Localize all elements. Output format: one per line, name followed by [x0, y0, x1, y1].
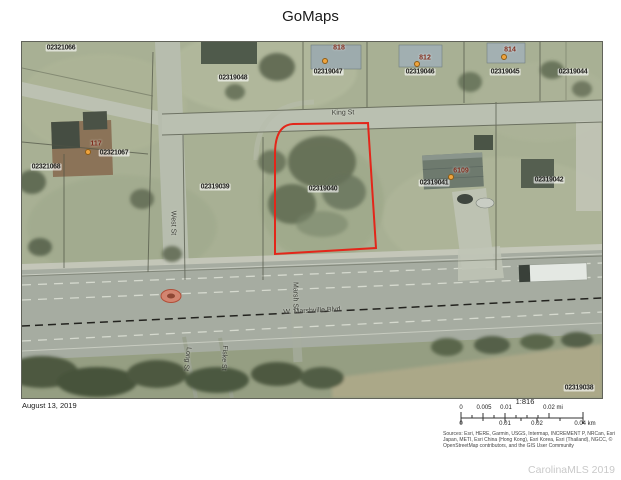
house-number: 6109 — [453, 168, 469, 175]
semi-truck — [519, 263, 588, 282]
parcel-label: 02319046 — [405, 69, 436, 76]
scalebar-km-tick: 0.04 km — [574, 421, 595, 427]
parcel-label: 02319038 — [564, 385, 595, 392]
parcel-label: 02319042 — [534, 177, 565, 184]
scalebar-mi-tick: 0 — [459, 405, 462, 411]
scalebar-km-tick: 0 — [459, 421, 462, 427]
scale-bar — [455, 412, 590, 424]
address-point-icon — [85, 149, 91, 155]
street-label-fiske: Fiske St — [220, 345, 228, 371]
parcel-label: 02319048 — [218, 75, 249, 82]
parcel-label: 02319041 — [419, 180, 450, 187]
house-number: 812 — [419, 55, 431, 62]
house-number: 117 — [90, 141, 101, 148]
scalebar-mi-tick: 0.01 — [500, 405, 512, 411]
house-number: 818 — [333, 45, 345, 52]
street-label-west: West St — [170, 211, 177, 235]
building-roof — [201, 42, 257, 64]
map-attribution: Sources: Esri, HERE, Garmin, USGS, Inter… — [443, 432, 617, 449]
street-label-marsh: Marsh St — [292, 282, 299, 310]
address-point-icon — [501, 54, 507, 60]
street-label-king: King St — [332, 109, 355, 116]
road-point-marker — [161, 290, 181, 303]
parcel-label: 02321066 — [46, 45, 77, 52]
shed-roof — [474, 135, 493, 150]
parcel-label: 02319039 — [200, 184, 231, 191]
parcel-label: 02321067 — [99, 150, 130, 157]
parcel-label-selected: 02319040 — [308, 186, 339, 193]
map-date: August 13, 2019 — [22, 401, 77, 410]
print-page: GoMaps — [0, 0, 621, 480]
app-title: GoMaps — [0, 8, 621, 25]
scalebar-mi-tick: 0.02 mi — [543, 405, 563, 411]
address-point-icon — [414, 61, 420, 67]
address-point-icon — [322, 58, 328, 64]
building-roof — [521, 159, 554, 188]
scalebar-mi-tick: 0.005 — [476, 405, 491, 411]
map-canvas[interactable]: 02321066 02319048 02319047 02319046 0231… — [21, 41, 603, 399]
house-number: 814 — [504, 47, 516, 54]
parcel-label: 02319044 — [558, 69, 589, 76]
parcel-label: 02319045 — [490, 69, 521, 76]
parcel-label: 02319047 — [313, 69, 344, 76]
aerial-imagery — [22, 42, 602, 398]
scalebar-km-tick: 0.01 — [499, 421, 511, 427]
scalebar-km-tick: 0.02 — [531, 421, 543, 427]
watermark: CarolinaMLS 2019 — [528, 464, 615, 476]
address-point-icon — [448, 174, 454, 180]
parcel-label: 02321068 — [31, 164, 62, 171]
